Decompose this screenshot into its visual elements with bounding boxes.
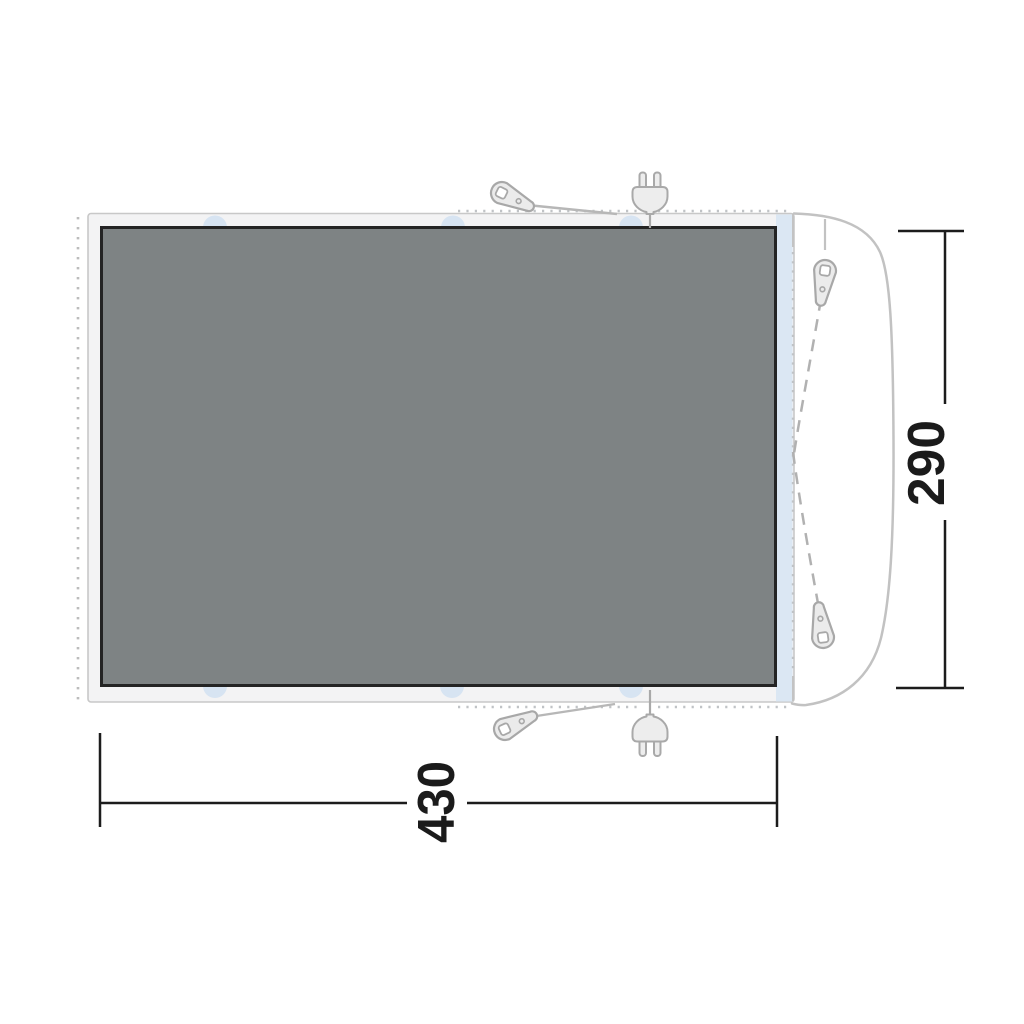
height-dimension-label: 290 xyxy=(898,420,956,506)
power-plug-icon xyxy=(633,173,668,215)
footprint-diagram-canvas: 430 290 xyxy=(0,0,1024,1024)
footprint-diagram: 430 290 xyxy=(0,0,1024,1024)
tent-peg-icon xyxy=(490,704,541,743)
guy-line-dashed-top xyxy=(794,299,822,457)
guy-line-dashed-bottom xyxy=(793,452,819,609)
tent-peg-icon xyxy=(487,178,538,218)
cowl-outline xyxy=(792,214,894,706)
width-dimension-label: 430 xyxy=(408,761,466,843)
tent-peg-icon xyxy=(807,601,835,650)
guy-line-top xyxy=(527,205,617,214)
groundsheet xyxy=(102,228,776,686)
tent-peg-icon xyxy=(809,259,837,308)
height-dimension: 290 xyxy=(896,231,964,688)
power-plug-icon xyxy=(633,715,668,757)
width-dimension: 430 xyxy=(100,733,777,843)
connection-panel-strip xyxy=(776,215,793,702)
